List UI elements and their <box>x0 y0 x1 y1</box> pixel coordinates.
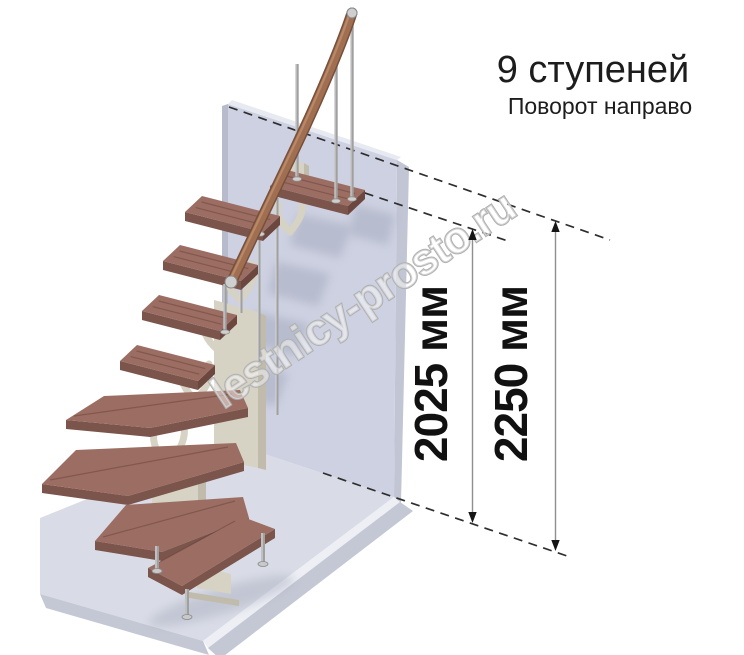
handrail-cap <box>225 276 237 288</box>
staircase-diagram-page: lestnicy-prosto.ru 2025 мм 2250 мм 9 сту… <box>0 0 744 655</box>
baluster-collar <box>348 197 357 201</box>
dimension-arrow-down-0 <box>468 512 476 523</box>
leg-foot <box>152 569 162 574</box>
page-subtitle: Поворот направо <box>508 93 692 119</box>
baluster-collar <box>221 330 230 334</box>
leg-foot <box>182 615 192 620</box>
baluster-collar <box>293 177 302 181</box>
leg-foot <box>258 562 268 567</box>
dimension-label-2025: 2025 мм <box>405 286 457 462</box>
staircase-diagram: lestnicy-prosto.ru 2025 мм 2250 мм 9 сту… <box>0 0 744 655</box>
dimension-label-2250: 2250 мм <box>485 286 537 462</box>
baluster-collar <box>332 199 341 203</box>
dimension-arrow-down-1 <box>551 540 559 551</box>
page-title: 9 ступеней <box>497 49 690 91</box>
handrail-cap <box>347 8 357 18</box>
